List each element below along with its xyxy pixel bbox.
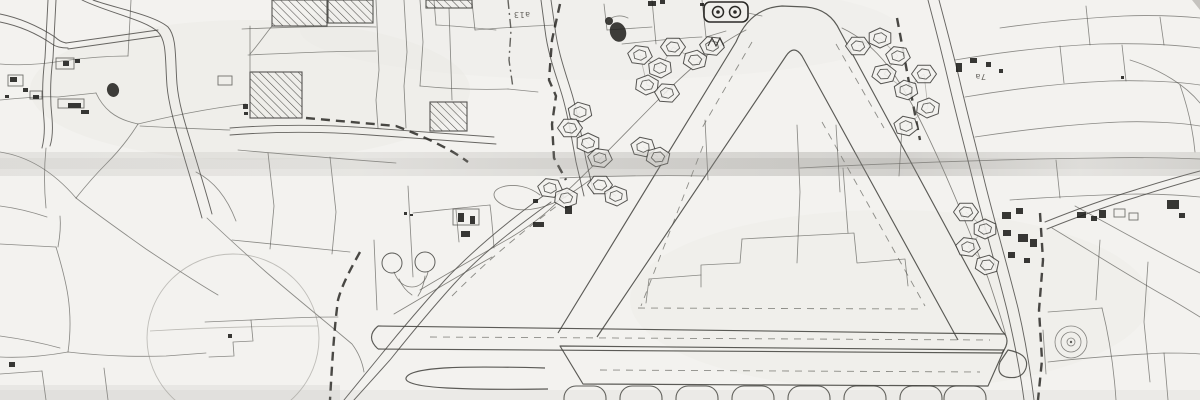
building-filled [244,112,248,115]
building-filled [33,95,39,99]
building-filled [1008,252,1015,258]
building-filled [23,88,28,92]
paper-background [0,0,1200,400]
building-filled [970,58,977,63]
hatched-parcel [250,72,302,118]
building-filled [75,59,80,63]
hatched-parcel [272,0,327,26]
building-filled [648,1,656,6]
building-filled [1030,239,1037,247]
hatched-parcel [426,0,472,8]
building-filled [956,63,962,72]
ink-blob [605,17,613,25]
building-filled [243,104,248,109]
hatched-parcel [430,102,467,131]
building-filled [533,222,544,227]
building-filled [9,362,15,367]
building-filled [565,206,572,214]
building-filled [458,213,464,222]
building-filled [81,110,89,114]
scanned-map-page: a13 7a [0,0,1200,400]
building-filled [1179,213,1185,218]
building-filled [1018,234,1028,242]
dispersal-pad-outer [869,28,891,48]
map-canvas: a13 7a [0,0,1200,400]
hatched-parcel [328,0,373,23]
building-filled [1099,210,1106,218]
ring-center-dot [1070,341,1072,343]
building-filled [1003,230,1011,236]
building-filled [1016,208,1023,214]
building-filled [63,61,69,66]
building-filled [404,212,407,215]
building-filled [1167,200,1179,209]
building-filled [10,77,17,82]
building-filled [533,199,538,203]
building-filled [68,103,81,108]
building-filled [999,69,1003,73]
building-filled [986,62,991,67]
building-filled [1024,258,1030,263]
building-filled [1121,76,1124,79]
building-filled [1077,212,1086,218]
building-filled [461,231,470,237]
building-filled [1091,216,1097,221]
parcel-number-annotation: a13 [513,10,530,19]
building-filled [1002,212,1011,219]
building-filled [410,214,413,216]
building-filled [228,334,232,338]
dispersal-pad-outer [974,219,996,239]
building-filled [660,0,665,4]
parcel-number-annotation: 7a [975,72,986,81]
building-filled [700,3,704,6]
building-filled [5,95,9,98]
building-filled [470,216,475,224]
